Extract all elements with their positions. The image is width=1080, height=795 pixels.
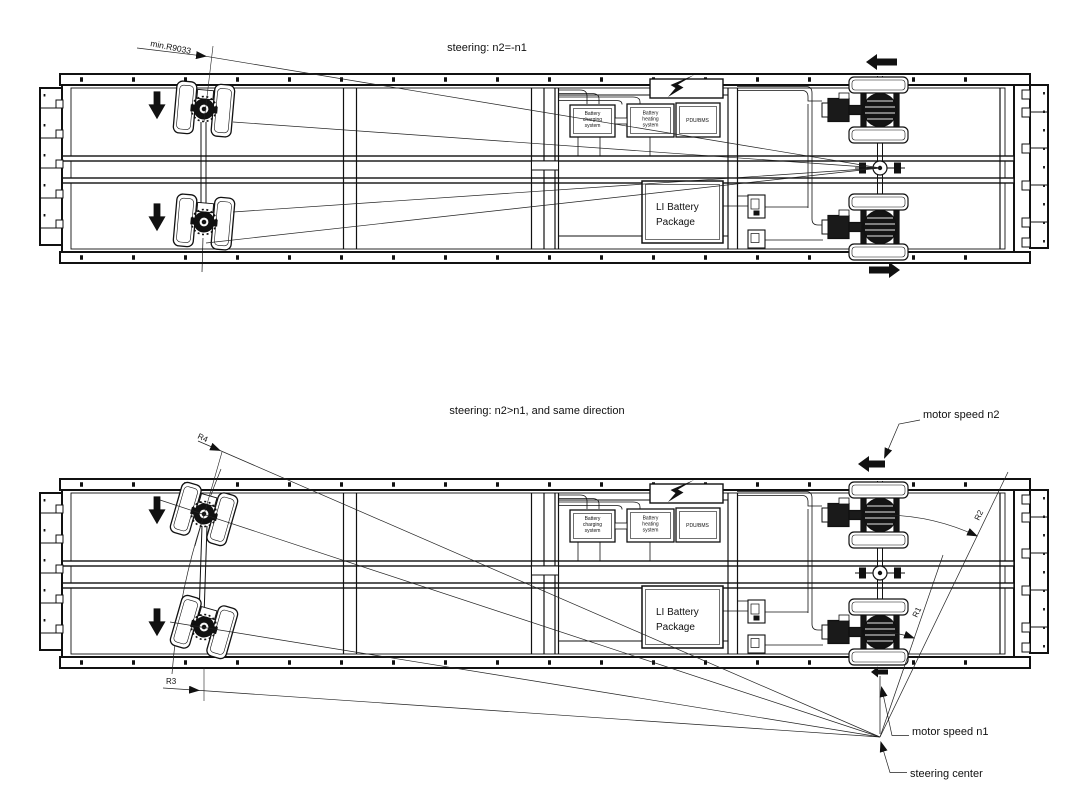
- bottom-diagram-annotations: steering: n2>n1, and same direction R4 R…: [160, 405, 1008, 780]
- hv-distribution-box: [650, 79, 723, 98]
- bottom-diagram-title: steering: n2>n1, and same direction: [449, 405, 624, 417]
- motor-n1-direction-arrow-right: [869, 262, 900, 278]
- battery-heating-system-box: Battery heating system: [627, 104, 674, 137]
- steered-bogie-upper: [173, 81, 235, 138]
- bottom-diagram-steered-bogies: [169, 469, 239, 674]
- radius-r3-label: R3: [166, 677, 177, 686]
- top-diagram-title: steering: n2=-n1: [447, 42, 527, 54]
- steering-diagrams-drawing: Battery charging system Battery heating …: [0, 0, 1080, 795]
- pdu-bms-label: PDU/BMS: [686, 118, 709, 124]
- battery-charging-label-3: system: [585, 123, 601, 129]
- drive-wheel-unit-lower: [822, 194, 908, 260]
- center-rail-upper: [62, 156, 1014, 161]
- motor-n2-direction-arrow-left: [858, 456, 885, 472]
- radius-r4-label: R4: [196, 432, 210, 445]
- junction-boxes: [748, 195, 765, 248]
- motor-speed-n1-label: motor speed n1: [912, 726, 988, 738]
- top-diagram-steered-bogies: [173, 81, 235, 272]
- right-bumper: [1022, 85, 1048, 248]
- drawing-canvas: Battery charging system Battery heating …: [0, 0, 1080, 795]
- steering-center-label: steering center: [910, 768, 983, 780]
- battery-heating-label-3: system: [643, 123, 659, 129]
- down-arrow-lower: [150, 204, 165, 230]
- left-bumper: [40, 88, 63, 245]
- leader-lines: [881, 420, 920, 773]
- battery-charging-system-box: Battery charging system: [570, 105, 615, 137]
- min-radius-label: min.R9033: [150, 38, 193, 56]
- li-battery-label-1: LI Battery: [656, 202, 699, 213]
- radius-r2-label: R2: [973, 508, 986, 522]
- drive-wheel-unit-upper: [822, 77, 908, 143]
- motor-n2-direction-arrow-left: [866, 54, 897, 70]
- center-rail-lower: [62, 178, 1014, 183]
- li-battery-label-2: Package: [656, 217, 695, 228]
- pdu-bms-box: PDU/BMS: [676, 103, 720, 137]
- steered-bogie-lower: [173, 194, 235, 251]
- motor-speed-n2-label: motor speed n2: [923, 409, 999, 421]
- down-arrow-upper: [150, 92, 165, 118]
